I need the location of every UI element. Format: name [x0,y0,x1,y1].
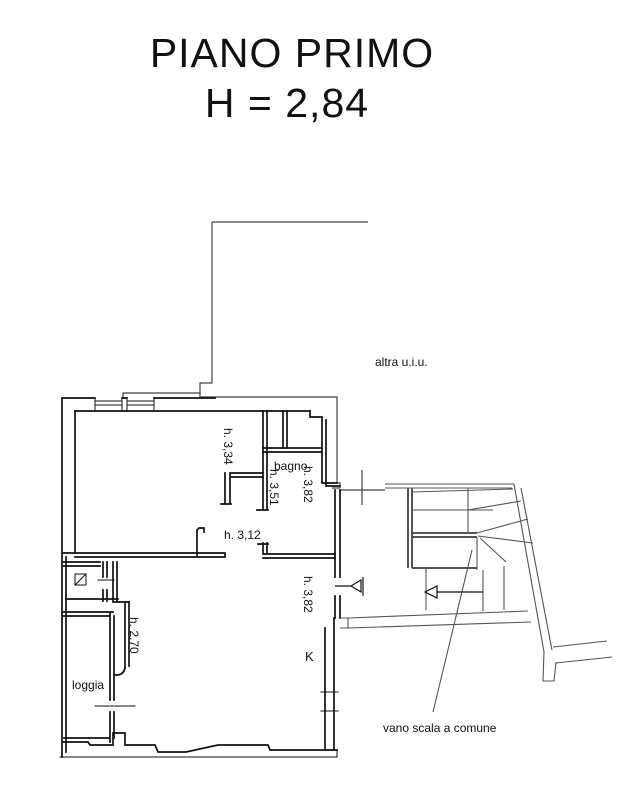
label-vano-scala: vano scala a comune [383,721,497,735]
stair-direction-arrow-icon [425,586,483,598]
entrance-door-icon [335,577,363,596]
leader-line-vano-scala [433,550,472,712]
label-kitchen-k: K [305,649,314,664]
label-h-382-bagno: h. 3,82 [301,466,315,503]
label-h-382-ingresso: h. 3,82 [301,576,315,613]
label-altra-uiu: altra u.i.u. [375,355,428,369]
label-h-351: h. 3,51 [267,469,281,506]
floor-plan-page: PIANO PRIMO H = 2,84 [0,0,643,800]
floor-plan-drawing: PIANO PRIMO H = 2,84 [0,0,643,800]
apartment-walls [60,393,340,757]
label-loggia: loggia [72,678,104,692]
stairwell-lines [340,484,612,712]
label-h-312: h. 3,12 [224,528,261,542]
page-title: PIANO PRIMO [150,30,434,76]
label-h-334: h. 3,34 [221,428,235,465]
label-h-270: h. 2,70 [127,617,141,654]
page-subtitle-height: H = 2,84 [205,80,369,126]
